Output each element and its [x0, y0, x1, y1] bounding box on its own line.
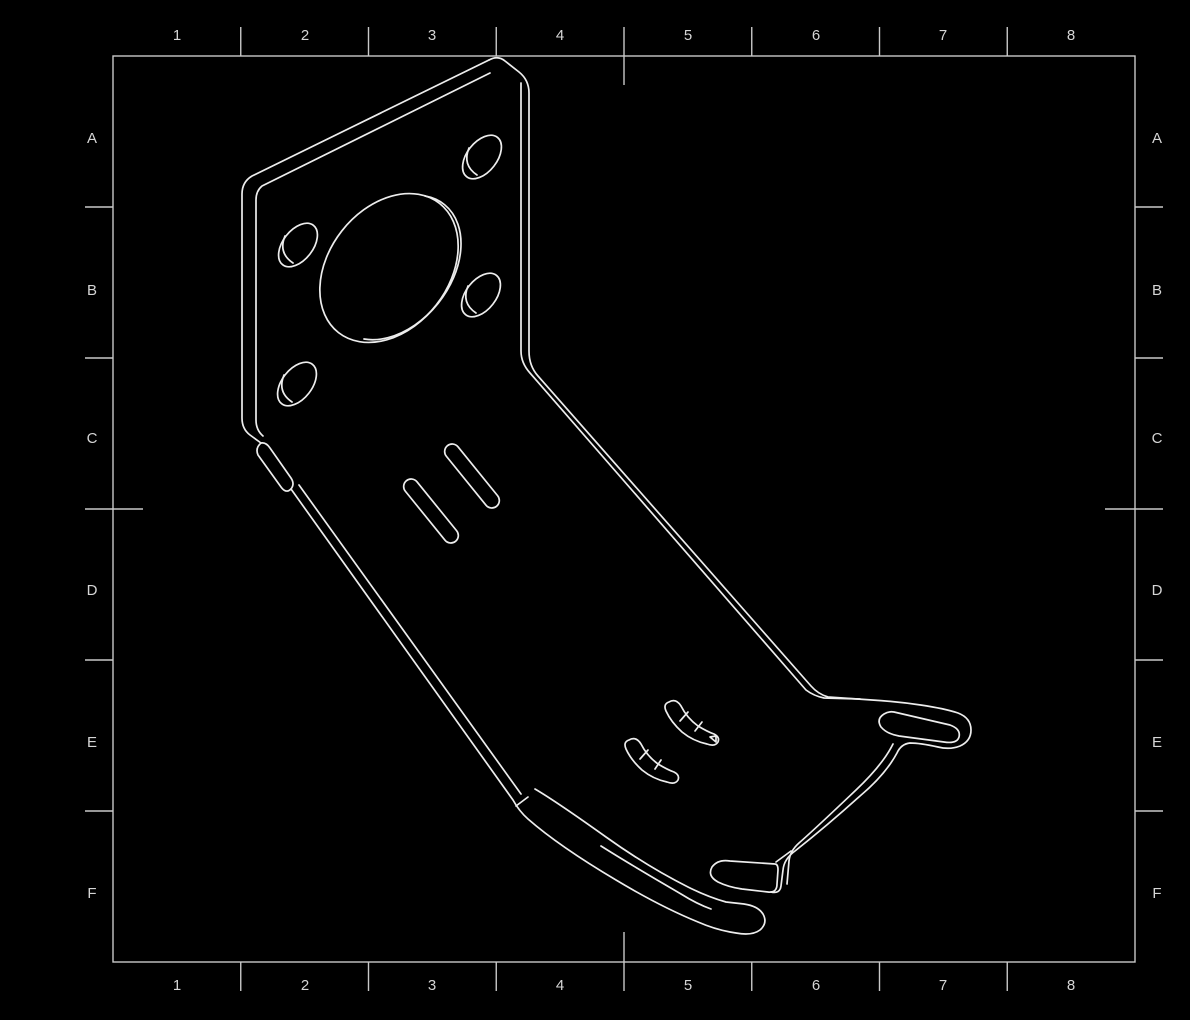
slot-lower-right	[665, 701, 719, 745]
zone-label-top-3: 3	[428, 27, 436, 44]
zone-label-left-D: D	[87, 582, 98, 599]
zone-label-left-B: B	[87, 282, 97, 299]
zone-label-right-A: A	[1152, 130, 1162, 147]
bend-relief-notch	[257, 443, 293, 491]
drawing-frame	[85, 27, 1163, 991]
mount-hole-right-lower	[454, 266, 508, 324]
zone-label-right-B: B	[1152, 282, 1162, 299]
drawing-sheet: 1 2 3 4 5 6 7 8 1 2 3 4 5 6 7 8 A B C D …	[0, 0, 1190, 1020]
zone-label-bottom-3: 3	[428, 977, 436, 994]
zone-label-bottom-4: 4	[556, 977, 564, 994]
zone-label-right-C: C	[1152, 430, 1163, 447]
mount-hole-left-lower	[270, 355, 324, 413]
zone-label-bottom-1: 1	[173, 977, 181, 994]
zone-label-top-8: 8	[1067, 27, 1075, 44]
motor-boss-hole-depth-arc	[364, 196, 461, 340]
zone-label-bottom-8: 8	[1067, 977, 1075, 994]
zone-label-left-E: E	[87, 734, 97, 751]
slot-upper-left	[401, 476, 462, 546]
slot-upper-right	[442, 441, 503, 511]
bottom-left-tab	[710, 861, 778, 893]
mount-hole-left-upper	[271, 216, 325, 274]
hook-inner-slot	[879, 712, 959, 743]
plate-inner-top-left-edge	[256, 73, 490, 436]
zone-label-top-2: 2	[301, 27, 309, 44]
zone-label-right-F: F	[1152, 885, 1161, 902]
zone-label-left-F: F	[87, 885, 96, 902]
bracket-isometric-outline	[242, 58, 971, 934]
plate-right-edge-and-body-silhouette	[489, 58, 971, 893]
zone-label-top-4: 4	[556, 27, 564, 44]
mount-hole-top-right	[455, 128, 509, 186]
zone-label-top-6: 6	[812, 27, 820, 44]
zone-label-bottom-6: 6	[812, 977, 820, 994]
zone-label-top-5: 5	[684, 27, 692, 44]
zone-label-left-C: C	[87, 430, 98, 447]
zone-label-top-1: 1	[173, 27, 181, 44]
zone-label-right-D: D	[1152, 582, 1163, 599]
bend-crease-end-tick	[516, 797, 528, 806]
zone-label-right-E: E	[1152, 734, 1162, 751]
drawing-canvas: 1 2 3 4 5 6 7 8 1 2 3 4 5 6 7 8 A B C D …	[0, 0, 1190, 1020]
zone-label-bottom-5: 5	[684, 977, 692, 994]
bend-crease-line	[299, 485, 521, 794]
frame-border	[113, 56, 1135, 962]
body-right-edge-inner-line	[521, 83, 860, 699]
slot-lower-left	[625, 739, 679, 783]
zone-label-bottom-7: 7	[939, 977, 947, 994]
body-left-edge-and-bottom-tab	[291, 489, 765, 934]
zone-label-left-A: A	[87, 130, 97, 147]
zone-label-top-7: 7	[939, 27, 947, 44]
bottom-band-crease	[601, 846, 711, 909]
zone-label-bottom-2: 2	[301, 977, 309, 994]
